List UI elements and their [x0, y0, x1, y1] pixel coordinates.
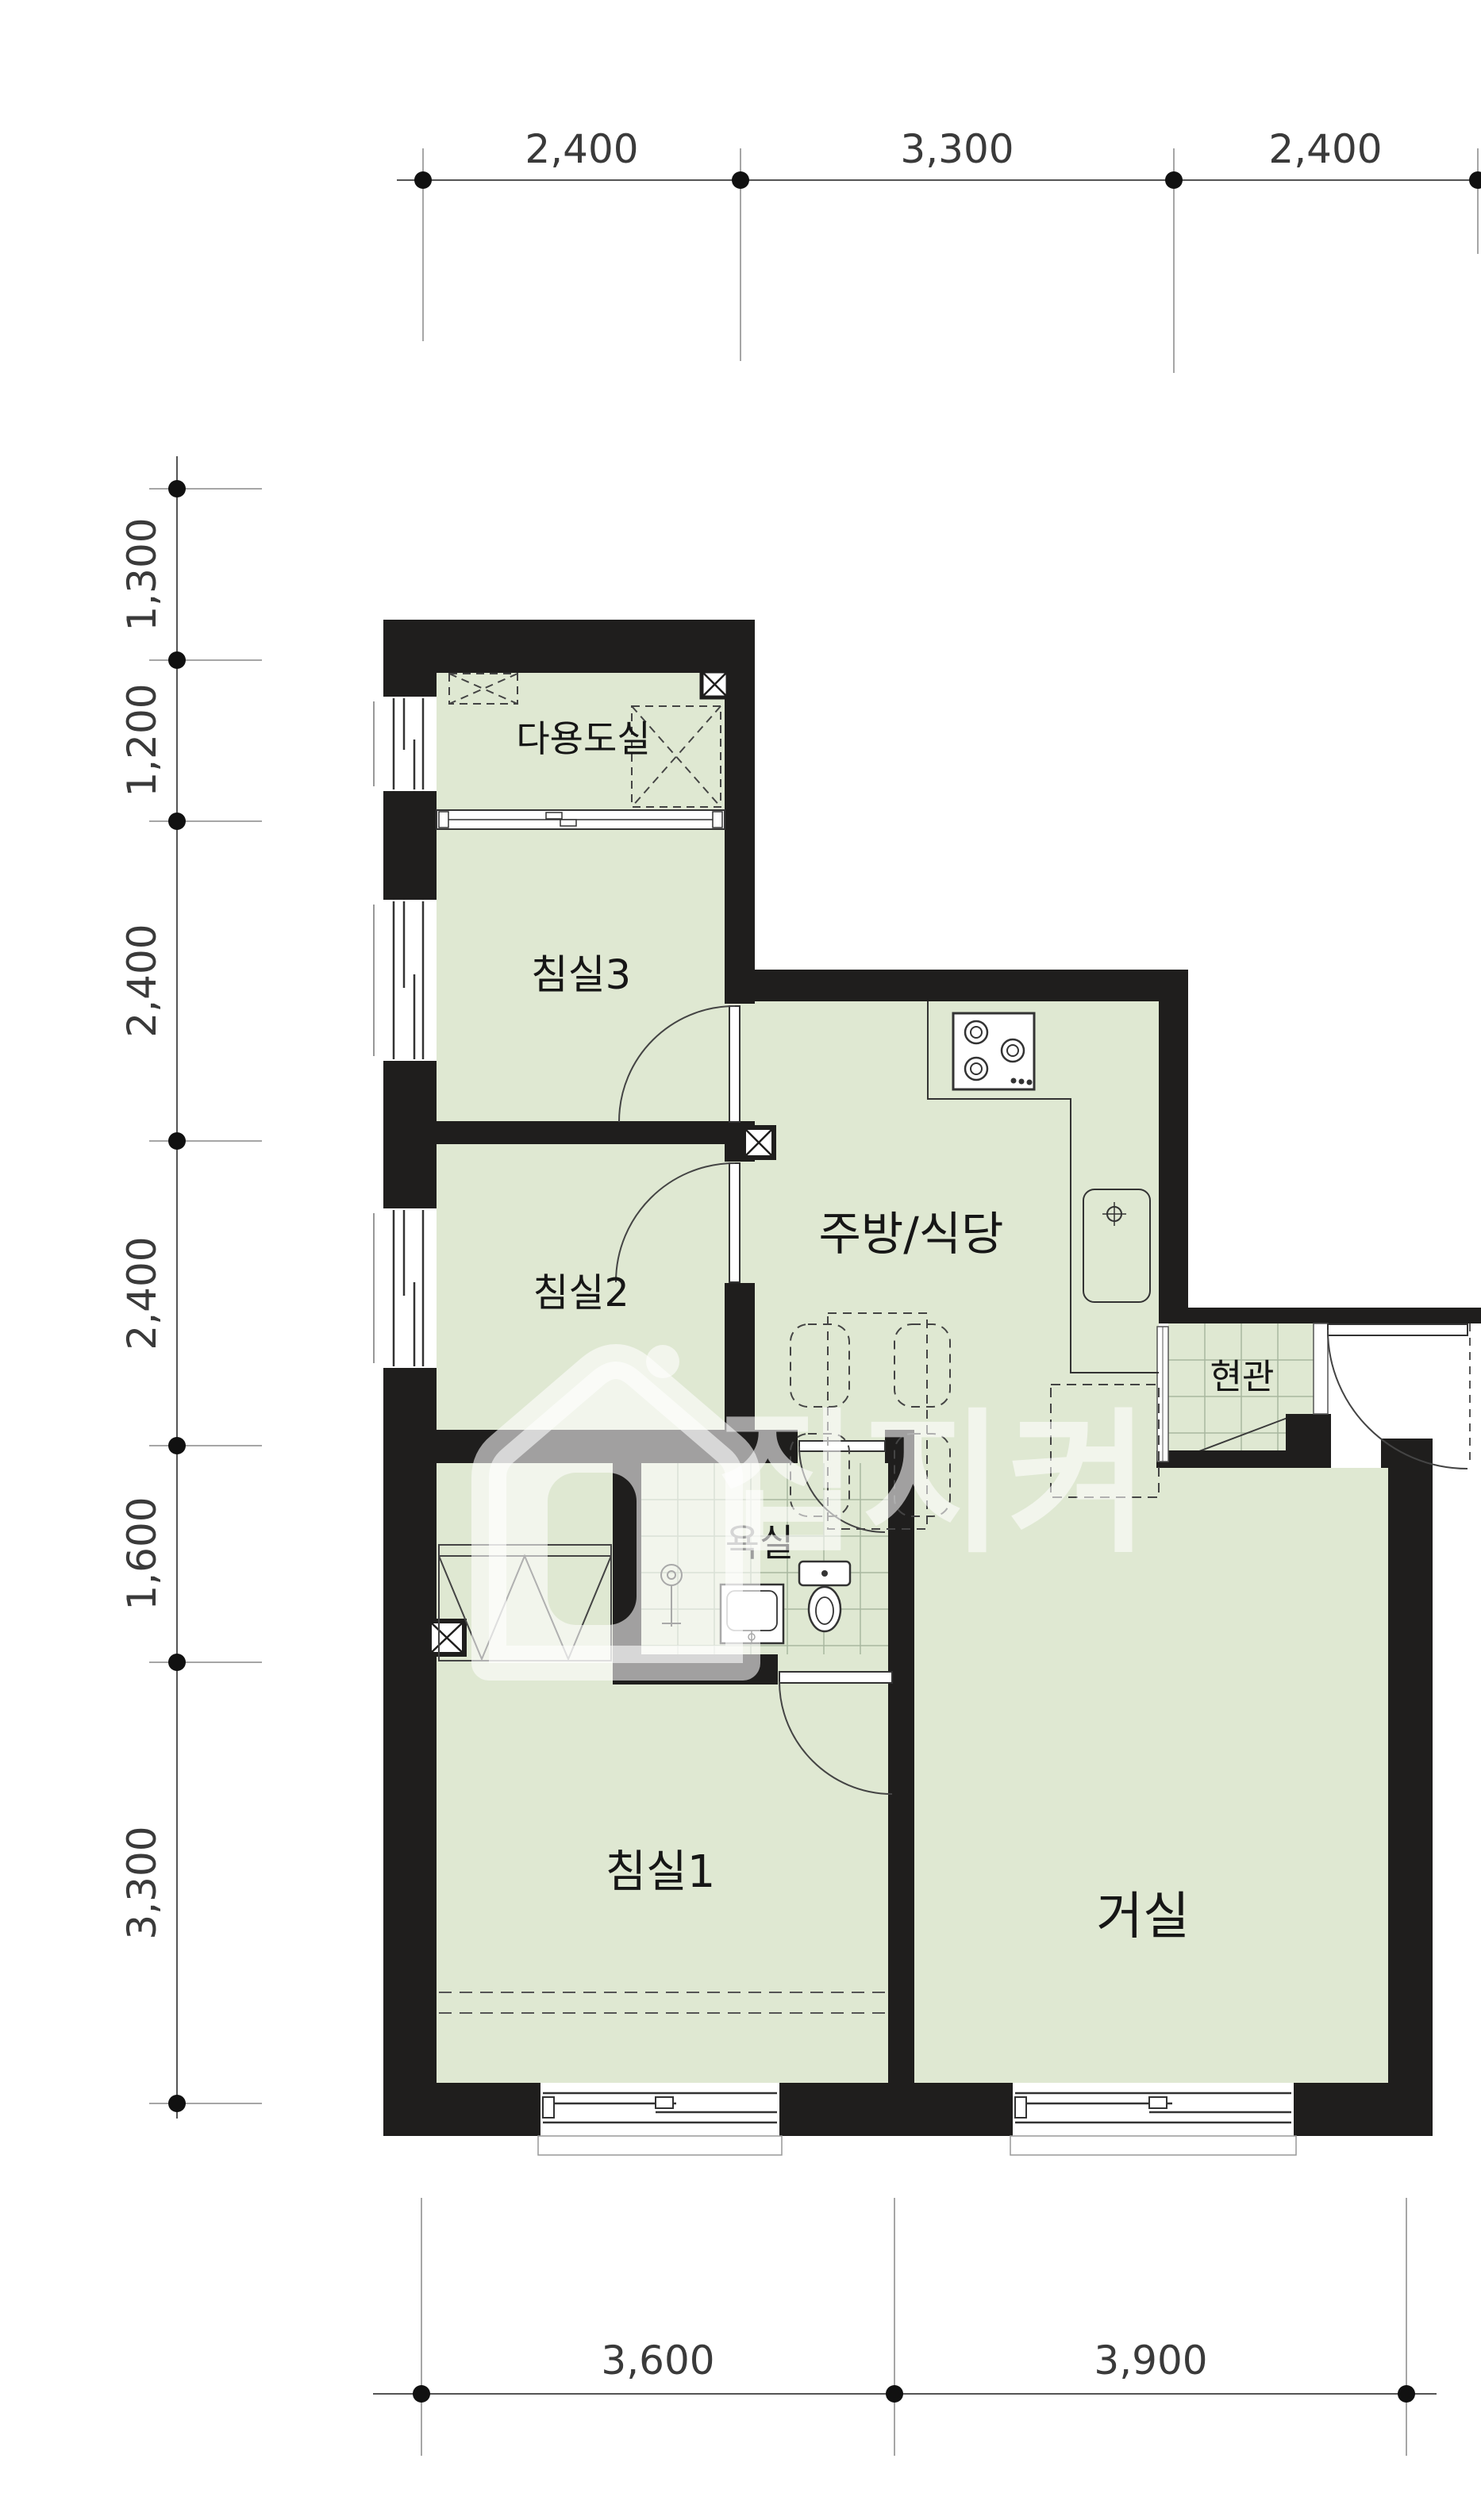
- dimension-bottom: 3,600 3,900: [373, 2198, 1437, 2456]
- window-sill: [1010, 2136, 1296, 2155]
- dim-bottom-2: 3,900: [1094, 2338, 1207, 2384]
- dimension-left: 1,300 1,200 2,400 2,400 1,600 3,300: [119, 456, 262, 2119]
- living-label: 거실: [1096, 1888, 1190, 1946]
- bedroom3-label: 침실3: [531, 952, 631, 999]
- dim-left-2: 1,200: [119, 683, 165, 797]
- dim-left-5: 1,600: [119, 1496, 165, 1610]
- dim-top-2: 3,300: [900, 126, 1014, 172]
- window-sill: [538, 2136, 782, 2155]
- floorplan-canvas: 다용도실 침실3 주방/식당 침실2 욕실 현관 침실1 거실 집지켜 2,40…: [0, 0, 1481, 2520]
- dim-bottom-1: 3,600: [601, 2338, 714, 2384]
- floorplan-drawing: 다용도실 침실3 주방/식당 침실2 욕실 현관 침실1 거실 집지켜 2,40…: [0, 0, 1481, 2520]
- stove-icon: [953, 1013, 1034, 1089]
- dim-top-3: 2,400: [1268, 126, 1382, 172]
- bedroom2-label: 침실2: [533, 1270, 629, 1316]
- logo-dot-icon: [646, 1345, 679, 1378]
- door-swing-icon-entrance: [1314, 1323, 1470, 1469]
- dim-left-1: 1,300: [119, 517, 165, 631]
- dim-left-3: 2,400: [119, 924, 165, 1037]
- bedroom1-label: 침실1: [606, 1846, 716, 1898]
- entrance-label: 현관: [1210, 1357, 1275, 1397]
- dim-top-1: 2,400: [525, 126, 638, 172]
- dim-left-6: 3,300: [119, 1826, 165, 1939]
- kitchen-label: 주방/식당: [819, 1207, 1004, 1261]
- utility-label: 다용도실: [516, 717, 650, 760]
- house-logo-icon: [489, 1362, 743, 1663]
- dim-left-4: 2,400: [119, 1236, 165, 1350]
- sliding-window-partition-icon: [437, 810, 725, 829]
- dimension-top: 2,400 3,300 2,400: [397, 126, 1481, 373]
- watermark-text: 집지켜: [716, 1394, 1152, 1574]
